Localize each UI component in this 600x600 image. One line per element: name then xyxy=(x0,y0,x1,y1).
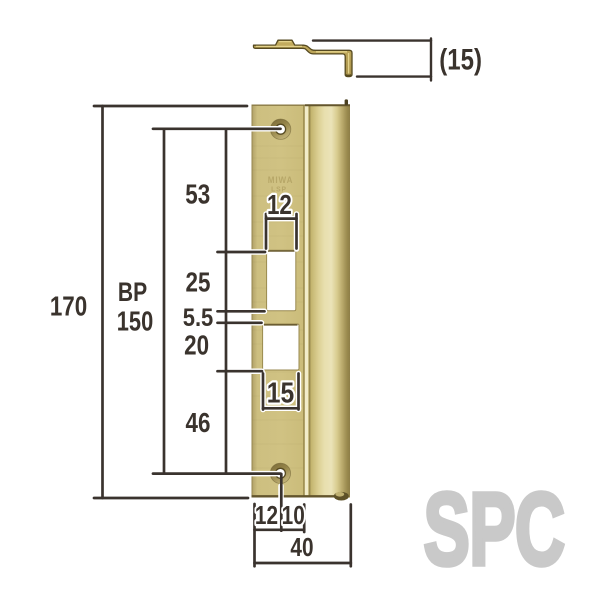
svg-text:53: 53 xyxy=(185,179,210,210)
svg-text:12: 12 xyxy=(255,501,278,530)
svg-text:46: 46 xyxy=(186,408,211,439)
svg-text:170: 170 xyxy=(50,291,87,322)
svg-text:BP: BP xyxy=(118,277,147,307)
svg-text:(15): (15) xyxy=(439,42,482,76)
svg-text:MIWA: MIWA xyxy=(268,175,294,186)
svg-text:15: 15 xyxy=(267,377,294,409)
svg-text:SPC: SPC xyxy=(424,471,565,587)
svg-text:25: 25 xyxy=(186,267,211,298)
svg-text:5.5: 5.5 xyxy=(183,304,214,332)
svg-text:12: 12 xyxy=(267,190,292,221)
svg-text:20: 20 xyxy=(184,330,209,361)
svg-text:150: 150 xyxy=(117,306,153,337)
svg-text:40: 40 xyxy=(290,533,313,562)
svg-text:10: 10 xyxy=(282,501,305,530)
